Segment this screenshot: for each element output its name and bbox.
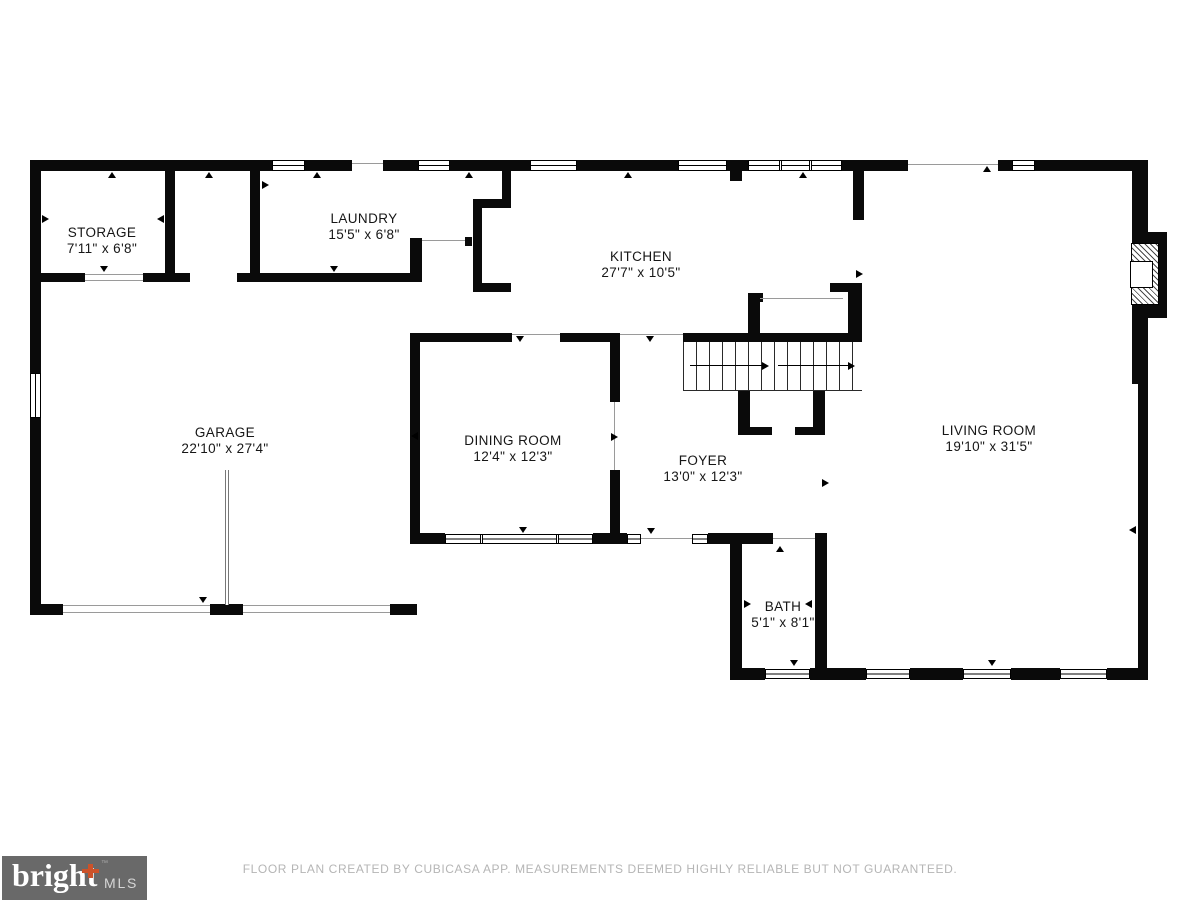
wall (410, 333, 512, 342)
wall (390, 604, 417, 615)
window (272, 160, 305, 171)
door-opening (85, 274, 143, 275)
room-dims: 5'1" x 8'1" (751, 615, 814, 631)
wall (810, 668, 866, 680)
wall (1107, 668, 1148, 680)
room-name: DINING ROOM (464, 433, 561, 449)
door-cap (465, 237, 472, 246)
wall (30, 604, 63, 615)
marker-icon (411, 432, 418, 440)
door-opening (773, 538, 815, 539)
stair-arrow-icon (762, 362, 769, 370)
marker-icon (100, 266, 108, 272)
window-mullion (809, 161, 812, 170)
window (963, 669, 1011, 679)
marker-icon (646, 336, 654, 342)
logo-trademark: ™ (101, 860, 108, 867)
room-name: FOYER (663, 453, 742, 469)
room-label-storage: STORAGE 7'11" x 6'8" (67, 225, 137, 257)
wall (848, 283, 862, 333)
wall (410, 238, 422, 282)
window (678, 160, 727, 171)
room-label-laundry: LAUNDRY 15'5" x 6'8" (328, 211, 399, 243)
wall (473, 199, 482, 292)
front-door-opening (641, 538, 692, 539)
marker-icon (157, 215, 164, 223)
garage-door-line (243, 612, 390, 613)
stair-arrow-icon (848, 362, 855, 370)
opening-line (352, 163, 383, 164)
marker-icon (205, 172, 213, 178)
room-label-dining: DINING ROOM 12'4" x 12'3" (464, 433, 561, 465)
marker-icon (744, 600, 751, 608)
wall (853, 171, 864, 220)
garage-door-line (63, 612, 210, 613)
window (530, 160, 577, 171)
room-dims: 15'5" x 6'8" (328, 227, 399, 243)
window-mullion (779, 161, 782, 170)
wall (1138, 384, 1148, 680)
marker-icon (822, 479, 829, 487)
door-opening (620, 334, 683, 335)
marker-icon (983, 166, 991, 172)
wall (41, 273, 85, 282)
window (866, 669, 910, 679)
wall (610, 333, 620, 402)
window (748, 160, 842, 171)
marker-icon (516, 336, 524, 342)
bright-mls-logo: bright ™ MLS (2, 856, 147, 900)
room-name: LAUNDRY (328, 211, 399, 227)
marker-icon (799, 172, 807, 178)
window-mullion (556, 535, 559, 543)
room-label-kitchen: KITCHEN 27'7" x 10'5" (601, 249, 680, 281)
window (30, 373, 41, 418)
room-dims: 12'4" x 12'3" (464, 449, 561, 465)
logo-suffix: MLS (104, 875, 138, 891)
wall-pier (730, 171, 742, 181)
room-dims: 19'10" x 31'5" (942, 439, 1036, 455)
wall (165, 160, 175, 273)
marker-icon (108, 172, 116, 178)
marker-icon (199, 597, 207, 603)
room-label-living: LIVING ROOM 19'10" x 31'5" (942, 423, 1036, 455)
stair-opening-line (760, 298, 843, 299)
door-opening (512, 334, 560, 335)
room-dims: 22'10" x 27'4" (181, 441, 268, 457)
room-name: STORAGE (67, 225, 137, 241)
marker-icon (262, 181, 269, 189)
wall (143, 273, 190, 282)
window (445, 534, 593, 544)
wall (830, 283, 848, 292)
marker-icon (42, 215, 49, 223)
window (765, 669, 810, 679)
wall (410, 533, 445, 544)
wall (815, 533, 827, 668)
room-label-garage: GARAGE 22'10" x 27'4" (181, 425, 268, 457)
disclaimer-text: FLOOR PLAN CREATED BY CUBICASA APP. MEAS… (243, 862, 958, 876)
marker-icon (465, 172, 473, 178)
room-label-foyer: FOYER 13'0" x 12'3" (663, 453, 742, 485)
wall (813, 390, 825, 435)
room-name: GARAGE (181, 425, 268, 441)
wall (738, 390, 750, 435)
room-name: LIVING ROOM (942, 423, 1036, 439)
wall (1011, 668, 1060, 680)
room-dims: 27'7" x 10'5" (601, 265, 680, 281)
logo-plus-icon (88, 864, 93, 878)
door-opening (85, 280, 143, 281)
room-dims: 7'11" x 6'8" (67, 241, 137, 257)
opening-line (908, 164, 998, 165)
wall (750, 427, 772, 435)
door-opening (422, 240, 465, 241)
wall (593, 533, 627, 544)
marker-icon (776, 546, 784, 552)
marker-icon (624, 172, 632, 178)
garage-door-line (243, 605, 390, 606)
floor-plan: STORAGE 7'11" x 6'8" LAUNDRY 15'5" x 6'8… (0, 0, 1200, 900)
window (1012, 160, 1035, 171)
room-name: KITCHEN (601, 249, 680, 265)
wall (210, 604, 243, 615)
room-label-bath: BATH 5'1" x 8'1" (751, 599, 814, 631)
window (627, 534, 641, 544)
stair-direction-line (690, 365, 762, 366)
wall (473, 283, 511, 292)
fireplace-firebox (1130, 261, 1153, 288)
window (692, 534, 708, 544)
stairs (683, 342, 862, 391)
wall (237, 273, 412, 282)
marker-icon (647, 528, 655, 534)
wall (910, 668, 963, 680)
garage-partition-line (225, 470, 229, 605)
logo-wordmark: bright (12, 857, 97, 894)
marker-icon (856, 270, 863, 278)
wall (795, 427, 813, 435)
marker-icon (519, 527, 527, 533)
wall (250, 160, 260, 278)
marker-icon (1129, 526, 1136, 534)
window (1060, 669, 1107, 679)
marker-icon (313, 172, 321, 178)
window-mullion (480, 535, 483, 543)
marker-icon (330, 266, 338, 272)
marker-icon (790, 660, 798, 666)
room-name: BATH (751, 599, 814, 615)
stair-direction-line (778, 365, 848, 366)
marker-icon (611, 433, 618, 441)
marker-icon (988, 660, 996, 666)
window (418, 160, 450, 171)
wall (730, 533, 742, 680)
room-dims: 13'0" x 12'3" (663, 469, 742, 485)
garage-door-line (63, 605, 210, 606)
wall (683, 333, 862, 342)
